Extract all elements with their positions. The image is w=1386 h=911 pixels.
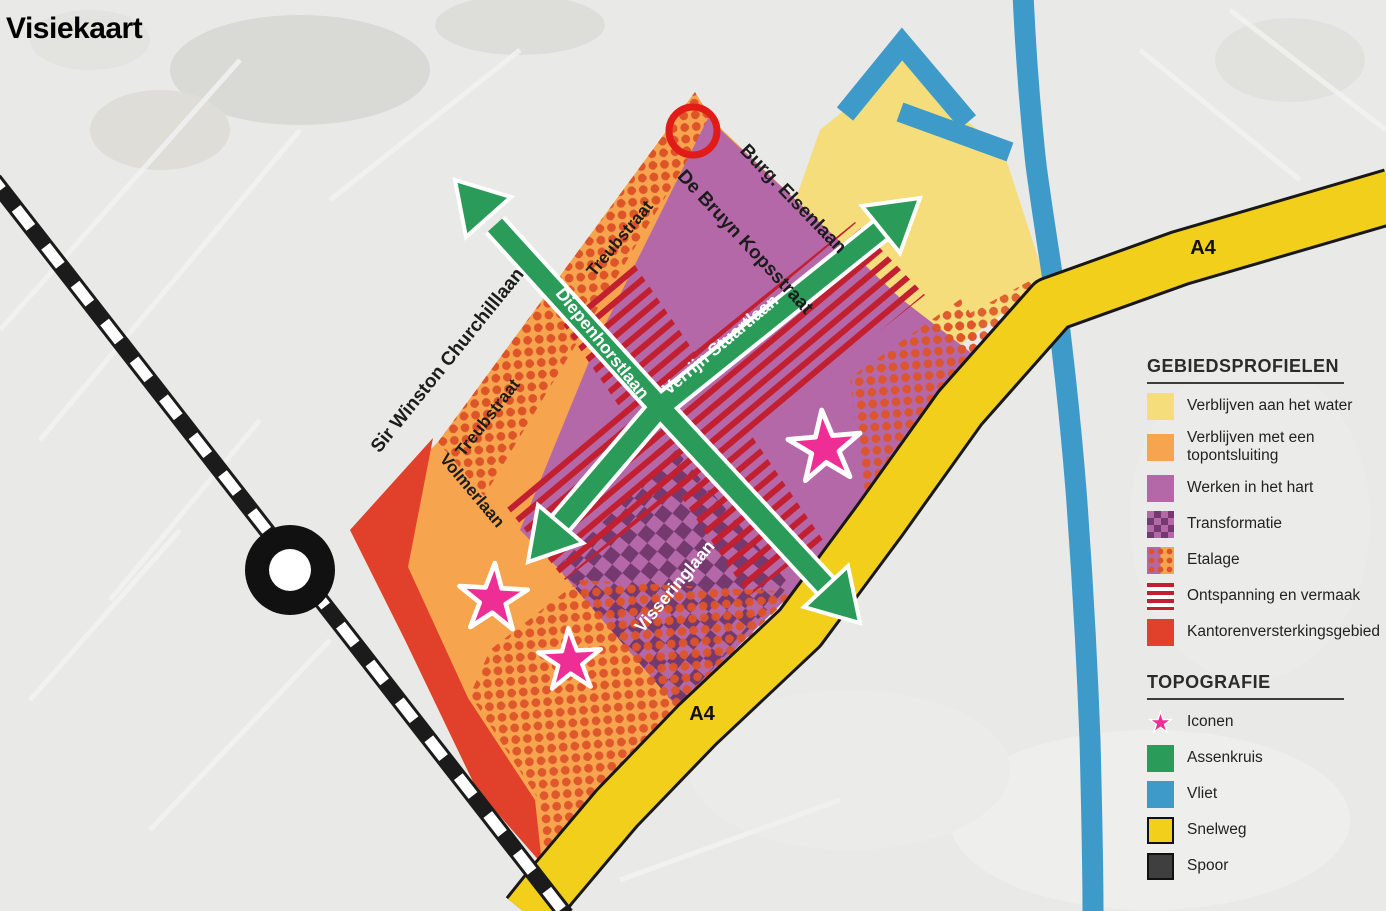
highway-label-a4-lower: A4 xyxy=(689,703,715,725)
legend-item-etalage: Etalage xyxy=(1147,547,1386,574)
legend-swatch-orange-icon xyxy=(1147,434,1174,461)
legend-item-label: Vliet xyxy=(1187,785,1217,803)
legend-item-label: Assenkruis xyxy=(1187,749,1263,767)
legend-item-label: Kantorenversterkingsgebied xyxy=(1187,623,1380,641)
legend-item-label: Ontspanning en vermaak xyxy=(1187,587,1360,605)
legend-item-kantorenversterking: Kantorenversterkingsgebied xyxy=(1147,619,1386,646)
legend-item-assenkruis: Assenkruis xyxy=(1147,745,1386,772)
legend-item-label: Snelweg xyxy=(1187,821,1246,839)
legend-section-title: TOPOGRAFIE xyxy=(1147,672,1344,700)
legend-swatch-yellow-icon xyxy=(1147,393,1174,420)
legend-section-title: GEBIEDSPROFIELEN xyxy=(1147,356,1344,384)
legend-item-label: Spoor xyxy=(1187,857,1228,875)
legend-swatch-star-icon xyxy=(1147,709,1174,736)
legend-item-spoor: Spoor xyxy=(1147,853,1386,880)
legend-item-verblijven-water: Verblijven aan het water xyxy=(1147,393,1386,420)
legend-swatch-spoor-icon xyxy=(1147,853,1174,880)
legend-item-label: Etalage xyxy=(1187,551,1240,569)
legend-swatch-blue-icon xyxy=(1147,781,1174,808)
legend-swatch-snelweg-icon xyxy=(1147,817,1174,844)
legend-item-snelweg: Snelweg xyxy=(1147,817,1386,844)
legend-gebiedsprofielen: GEBIEDSPROFIELEN Verblijven aan het wate… xyxy=(1147,356,1386,646)
legend-item-transformatie: Transformatie xyxy=(1147,511,1386,538)
legend-item-label: Transformatie xyxy=(1187,515,1282,533)
legend-swatch-purple-icon xyxy=(1147,475,1174,502)
legend-swatch-stripes-icon xyxy=(1147,583,1174,610)
legend-swatch-red-icon xyxy=(1147,619,1174,646)
legend-swatch-green-icon xyxy=(1147,745,1174,772)
station-circle-center xyxy=(269,549,311,591)
legend-item-werken-hart: Werken in het hart xyxy=(1147,475,1386,502)
legend-swatch-etalage-icon xyxy=(1147,547,1174,574)
legend-item-label: Werken in het hart xyxy=(1187,479,1313,497)
legend-item-iconen: Iconen xyxy=(1147,709,1386,736)
legend-item-label: Verblijven met een topontsluiting xyxy=(1187,429,1347,466)
legend-topografie: TOPOGRAFIE Iconen Assenkruis Vliet Snelw… xyxy=(1147,672,1386,880)
legend-item-ontspanning: Ontspanning en vermaak xyxy=(1147,583,1386,610)
legend-swatch-checker-icon xyxy=(1147,511,1174,538)
highway-label-a4-upper: A4 xyxy=(1190,237,1216,259)
legend-item-verblijven-topontsluiting: Verblijven met een topontsluiting xyxy=(1147,429,1386,466)
page-title: Visiekaart xyxy=(6,12,142,46)
legend-item-label: Iconen xyxy=(1187,713,1234,731)
legend-item-vliet: Vliet xyxy=(1147,781,1386,808)
legend-item-label: Verblijven aan het water xyxy=(1187,397,1352,415)
